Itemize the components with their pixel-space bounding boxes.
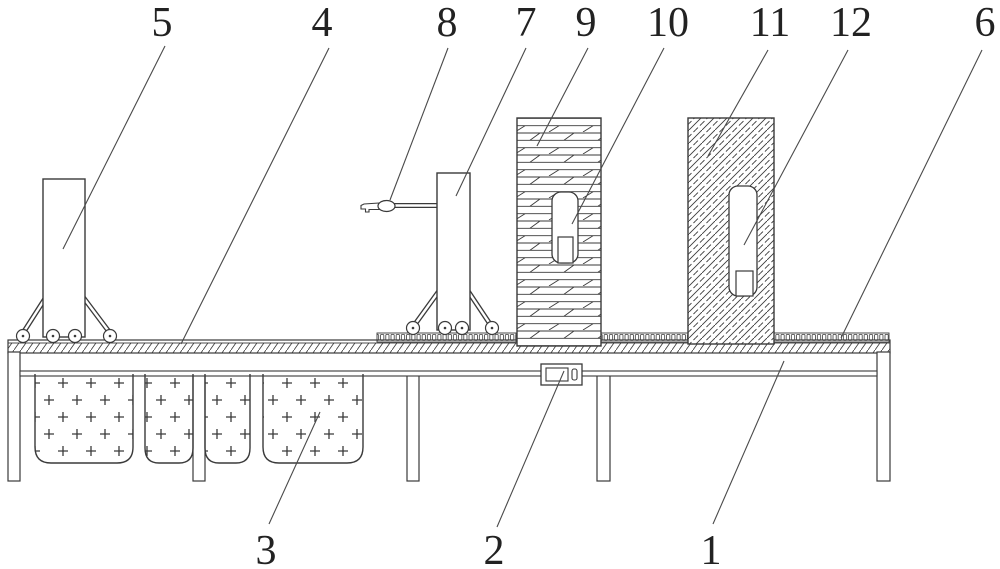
callout-label-7: 7 [516, 0, 537, 46]
block-9 [517, 118, 601, 346]
support-brace-inner [468, 291, 492, 327]
roller-pin [491, 327, 494, 330]
controller-box-knob [572, 369, 577, 380]
table-leg [407, 375, 419, 481]
support-brace-inner [413, 291, 439, 327]
column-post [43, 179, 85, 337]
leader-line-2 [497, 371, 564, 527]
callout-label-3: 3 [256, 528, 277, 569]
conveyor-track-segment [601, 333, 688, 342]
callout-label-11: 11 [750, 0, 790, 46]
leader-line-5 [63, 46, 165, 249]
callout-label-2: 2 [484, 528, 505, 569]
callout-label-6: 6 [975, 0, 996, 46]
workbench [8, 333, 890, 481]
block-11 [688, 118, 774, 344]
callout-label-8: 8 [437, 0, 458, 46]
slot-12-insert [736, 271, 753, 296]
callout-label-4: 4 [312, 0, 333, 46]
callout-label-9: 9 [576, 0, 597, 46]
roller-pin [52, 335, 55, 338]
callout-label-5: 5 [152, 0, 173, 46]
column-post [437, 173, 470, 330]
leader-line-6 [841, 50, 982, 338]
roller-pin [412, 327, 415, 330]
callout-label-12: 12 [830, 0, 872, 46]
table-leg [877, 352, 890, 481]
leader-line-1 [713, 361, 784, 524]
collection-basket [35, 374, 133, 463]
controller-box [541, 364, 582, 385]
callout-label-1: 1 [701, 528, 722, 569]
support-column-left [17, 179, 117, 343]
nozzle-tip [361, 203, 379, 212]
conveyor-track [377, 333, 889, 342]
roller-pin [109, 335, 112, 338]
nozzle-body [378, 201, 395, 212]
slot-10-insert [558, 237, 573, 263]
callout-label-10: 10 [647, 0, 689, 46]
support-brace-inner [83, 297, 110, 333]
table-leg [8, 352, 20, 481]
controller-box-screen [546, 368, 568, 381]
patent-figure-canvas: 5 4 8 7 9 10 11 12 6 3 2 1 [0, 0, 1000, 569]
collection-basket [263, 374, 363, 463]
table-leg [597, 375, 610, 481]
leader-line-4 [181, 48, 329, 344]
conveyor-track-segment [774, 333, 889, 342]
support-column-right [361, 173, 499, 335]
patent-figure: 5 4 8 7 9 10 11 12 6 3 2 1 [0, 0, 1000, 569]
collection-basket [145, 374, 193, 463]
roller-pin [461, 327, 464, 330]
roller-pin [74, 335, 77, 338]
collection-basket [205, 374, 250, 463]
roller-pin [444, 327, 447, 330]
spray-nozzle [361, 201, 395, 213]
table-leg [193, 375, 205, 481]
leader-line-7 [456, 48, 526, 196]
roller-pin [22, 335, 25, 338]
